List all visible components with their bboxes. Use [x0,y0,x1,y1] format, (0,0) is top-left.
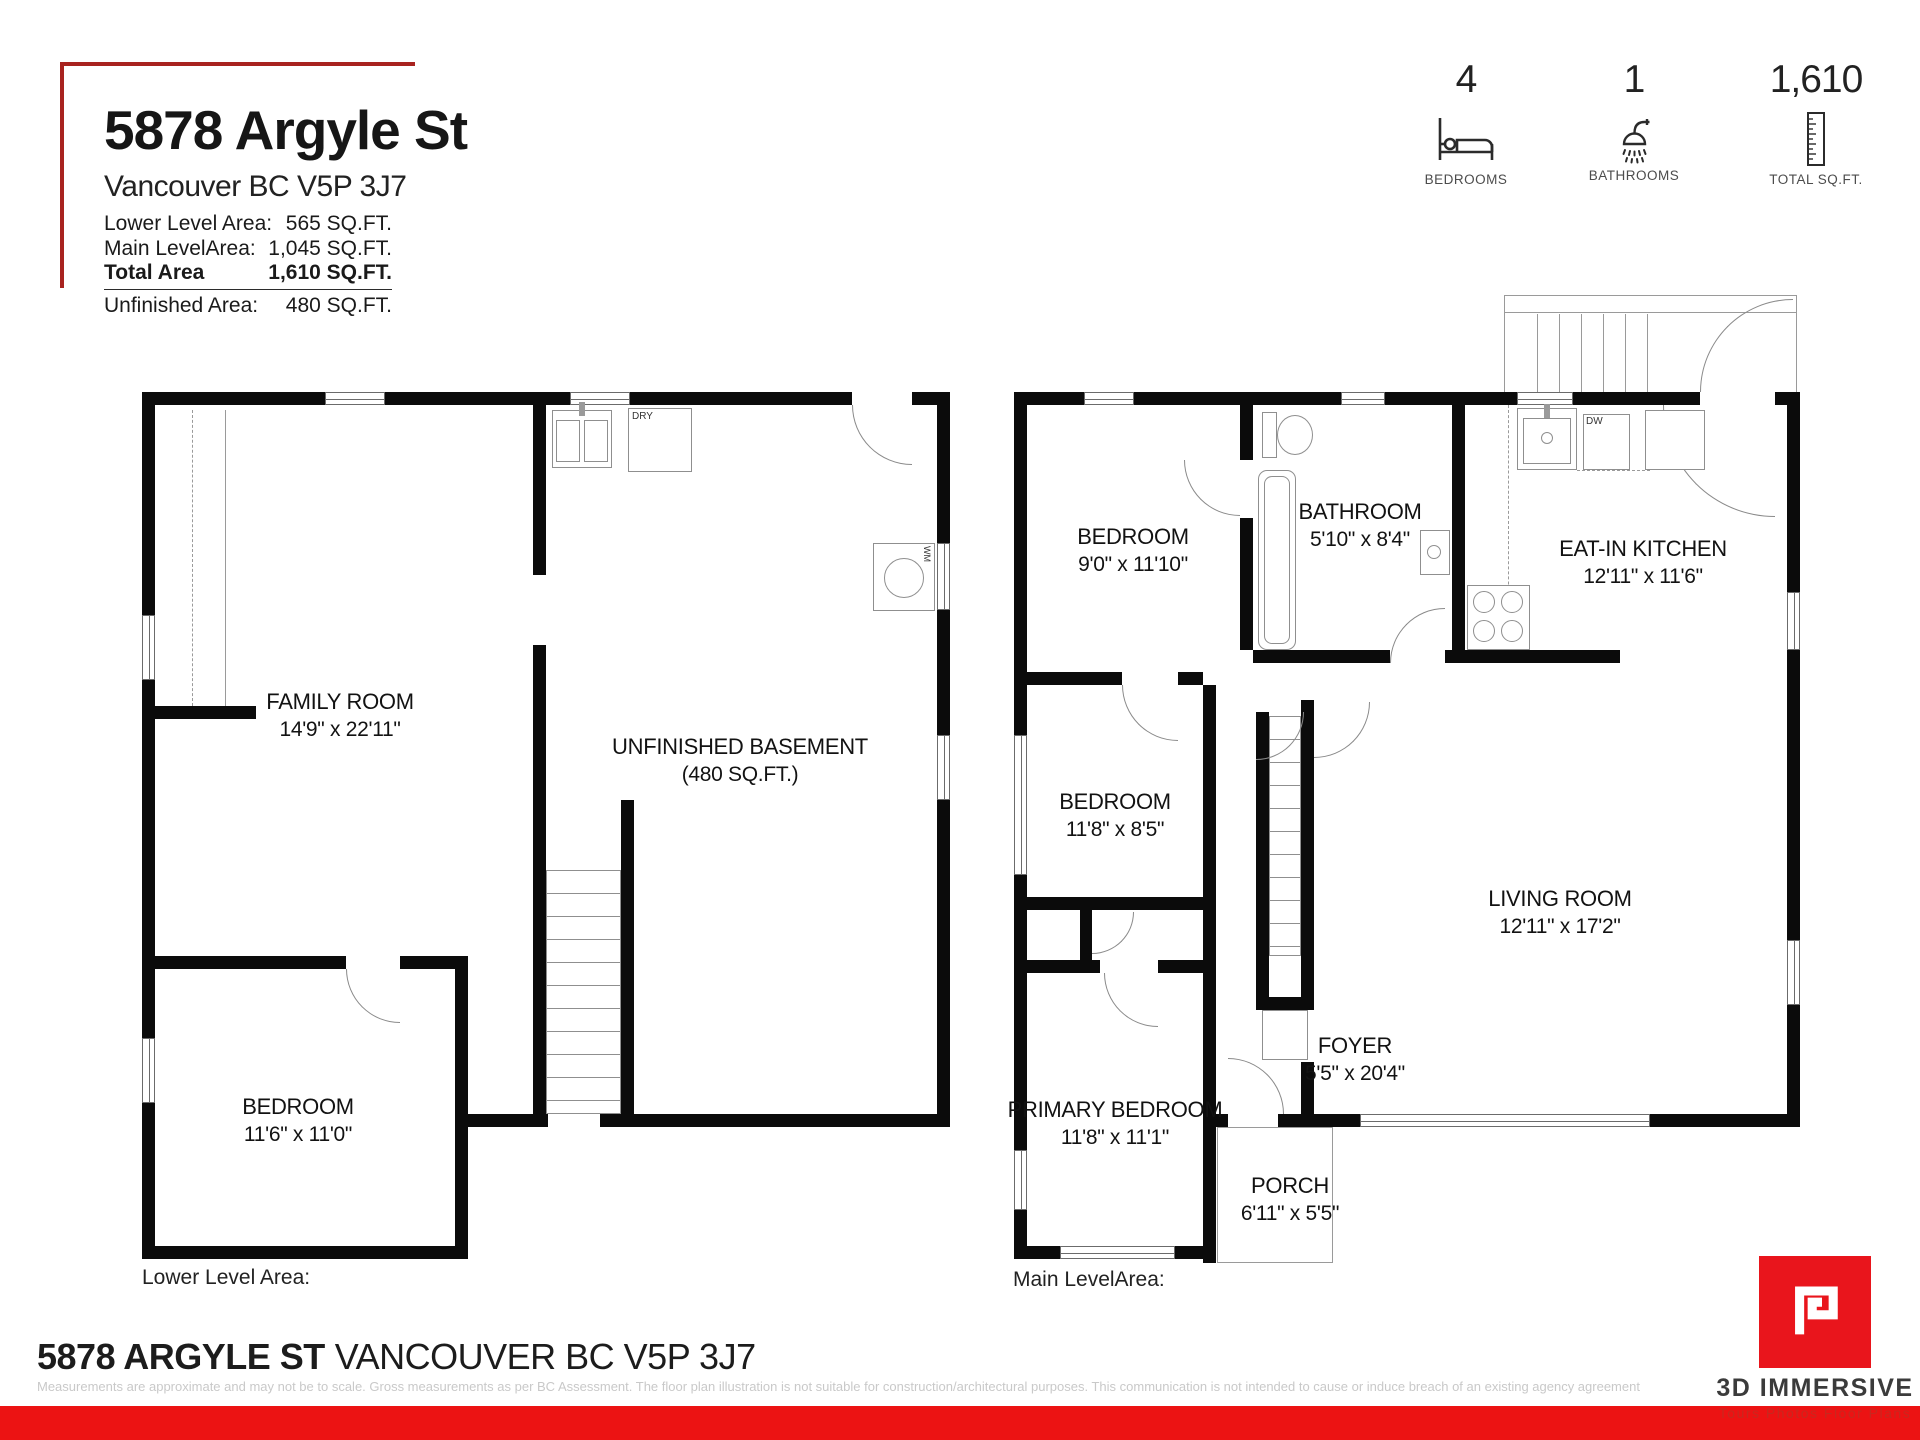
door-opening [1700,392,1775,405]
dryer-label: DRY [632,411,653,422]
kitchen-counter [1645,410,1705,470]
wall [533,405,546,1114]
room-name: BATHROOM [1298,498,1421,526]
shower-icon [1559,113,1709,171]
room-label-bedroom-front: BEDROOM 9'0" x 11'10" [1077,523,1189,578]
door-opening [1240,460,1253,518]
window [1787,940,1800,1005]
stairs [546,870,621,1114]
room-dims: 9'0" x 11'10" [1077,551,1189,578]
ruler-icon [1741,110,1891,168]
area-row-label: Lower Level Area: [104,212,272,237]
door-opening [1228,1114,1278,1127]
door-opening [852,392,912,405]
stat-total-sqft: 1,610 TOTAL SQ.FT. [1741,58,1891,187]
door-arc [1122,685,1178,741]
room-label-unfinished-basement: UNFINISHED BASEMENT (480 SQ.FT.) [612,733,868,788]
page-subtitle: Vancouver BC V5P 3J7 [104,170,406,204]
room-dims: 5'5" x 20'4" [1305,1060,1405,1087]
accent-border-left [60,62,64,288]
page-title: 5878 Argyle St [104,98,467,162]
laundry-sink-basin [556,420,580,462]
room-name: BEDROOM [1077,523,1189,551]
stove-burner [1501,591,1523,613]
door-opening [548,1114,600,1127]
counter-dashed-line [1577,470,1650,471]
footer-disclaimer: Measurements are approximate and may not… [37,1379,1910,1394]
wall [1240,405,1253,650]
wall [142,1246,468,1259]
stove-burner [1473,591,1495,613]
logo-mark-icon [1759,1256,1871,1368]
toilet-bowl [1277,415,1313,455]
room-label-foyer: FOYER 5'5" x 20'4" [1305,1032,1405,1087]
company-logo: 3D IMMERSIVE Tours Photos Floor Plans [1700,1256,1920,1421]
door-opening [1122,672,1178,685]
room-name: PORCH [1241,1172,1339,1200]
room-dims: 11'8" x 8'5" [1059,816,1171,843]
window [142,615,155,680]
main-level-caption: Main LevelArea: [1013,1268,1165,1292]
wall [455,1114,950,1127]
stat-bathrooms: 1 BATHROOMS [1559,58,1709,183]
door-arc [1092,912,1134,954]
room-name: FAMILY ROOM [266,688,413,716]
stat-bedrooms: 4 BEDROOMS [1391,58,1541,187]
room-label-family-room: FAMILY ROOM 14'9" x 22'11" [266,688,413,743]
faucet [1544,404,1550,418]
window [937,735,950,800]
room-label-living-room: LIVING ROOM 12'11" x 17'2" [1488,885,1631,940]
wall [1301,700,1314,1010]
wall [621,800,634,1114]
stair-landing [1262,1010,1308,1060]
window [1360,1114,1650,1127]
wall [142,956,468,969]
footer-address: 5878 ARGYLE STVANCOUVER BC V5P 3J7 [37,1336,756,1378]
window [1787,592,1800,650]
door-arc [1184,460,1240,516]
room-label-kitchen: EAT-IN KITCHEN 12'11" x 11'6" [1559,535,1727,590]
room-name: BEDROOM [242,1093,354,1121]
stove-burner [1501,620,1523,642]
window [937,543,950,610]
door-opening [1100,960,1158,973]
lower-level-caption: Lower Level Area: [142,1266,310,1290]
wall [152,706,256,719]
room-dims: 11'6" x 11'0" [242,1121,354,1148]
toilet-tank [1262,412,1277,458]
area-row-value: 1,045 SQ.FT. [268,237,392,262]
wall [1787,392,1800,1127]
room-dims: (480 SQ.FT.) [612,761,868,788]
window [1060,1246,1175,1259]
total-sqft-label: TOTAL SQ.FT. [1741,172,1891,187]
door-arc [1228,1058,1284,1114]
bathtub-inner [1264,476,1290,644]
room-name: PRIMARY BEDROOM [1008,1096,1223,1124]
room-dims: 11'8" x 11'1" [1008,1124,1223,1151]
bed-icon [1391,110,1541,168]
window [1084,392,1134,405]
area-row-label: Total Area [104,261,204,286]
logo-tagline: Tours Photos Floor Plans [1700,1405,1920,1421]
wall [1452,405,1465,663]
room-label-primary-bedroom: PRIMARY BEDROOM 11'8" x 11'1" [1008,1096,1223,1151]
bedrooms-label: BEDROOMS [1391,172,1541,187]
room-name: BEDROOM [1059,788,1171,816]
door-opening [533,575,546,645]
bedrooms-count: 4 [1391,58,1541,102]
stove-burner [1473,620,1495,642]
sink-drain [1427,545,1441,559]
room-label-bathroom: BATHROOM 5'10" x 8'4" [1298,498,1421,553]
door-arc [346,969,400,1023]
footer-red-bar [0,1406,1920,1440]
area-summary-table: Lower Level Area: 565 SQ.FT. Main LevelA… [104,212,392,318]
accent-border-top [60,62,415,66]
wall [1203,685,1216,1263]
window [325,392,385,405]
floorplan-page: { "header": { "title": "5878 Argyle St",… [0,0,1920,1440]
area-row-total: Total Area 1,610 SQ.FT. [104,261,392,286]
window [142,1038,155,1103]
dishwasher-label: DW [1586,416,1603,427]
area-row-main: Main LevelArea: 1,045 SQ.FT. [104,237,392,262]
room-label-bedroom-mid: BEDROOM 11'8" x 8'5" [1059,788,1171,843]
logo-brand-name: 3D IMMERSIVE [1700,1374,1920,1403]
deck-stairs [1516,314,1658,393]
room-name: LIVING ROOM [1488,885,1631,913]
window [1014,1150,1027,1210]
door-arc [1314,702,1370,758]
area-row-lower: Lower Level Area: 565 SQ.FT. [104,212,392,237]
door-arc [1104,973,1158,1027]
room-dims: 12'11" x 17'2" [1488,913,1631,940]
wall [1465,650,1620,663]
laundry-sink-basin [584,420,608,462]
room-name: FOYER [1305,1032,1405,1060]
area-row-unfinished: Unfinished Area: 480 SQ.FT. [104,294,392,319]
area-row-label: Unfinished Area: [104,294,258,319]
footer-address-street: 5878 ARGYLE ST [37,1336,325,1377]
wall [142,392,155,1259]
footer-address-city: VANCOUVER BC V5P 3J7 [335,1336,756,1377]
area-row-value: 480 SQ.FT. [286,294,392,319]
window [1014,735,1027,875]
wall [1256,997,1314,1010]
room-dims: 5'10" x 8'4" [1298,526,1421,553]
room-label-bedroom-lower: BEDROOM 11'6" x 11'0" [242,1093,354,1148]
room-dims: 14'9" x 22'11" [266,716,413,743]
washing-machine-drum [884,558,924,598]
faucet [579,402,585,416]
room-name: EAT-IN KITCHEN [1559,535,1727,563]
wall [142,392,950,405]
area-row-value: 565 SQ.FT. [286,212,392,237]
bathrooms-count: 1 [1559,58,1709,102]
room-label-porch: PORCH 6'11" x 5'5" [1241,1172,1339,1227]
wall [455,956,468,1259]
room-name: UNFINISHED BASEMENT [612,733,868,761]
total-sqft-count: 1,610 [1741,58,1891,102]
area-divider [104,289,392,290]
area-row-label: Main LevelArea: [104,237,256,262]
closet-dashed-line [192,410,193,706]
room-dims: 12'11" x 11'6" [1559,563,1727,590]
closet-line [225,410,226,706]
washer-label: WM [922,546,932,562]
door-arc [852,405,912,465]
area-row-value: 1,610 SQ.FT. [268,261,392,286]
room-dims: 6'11" x 5'5" [1241,1200,1339,1227]
sink-drain [1541,432,1553,444]
wall [1014,897,1203,910]
door-opening [346,956,400,969]
wall [1080,910,1092,973]
door-arc [1390,608,1445,663]
window [1341,392,1385,405]
